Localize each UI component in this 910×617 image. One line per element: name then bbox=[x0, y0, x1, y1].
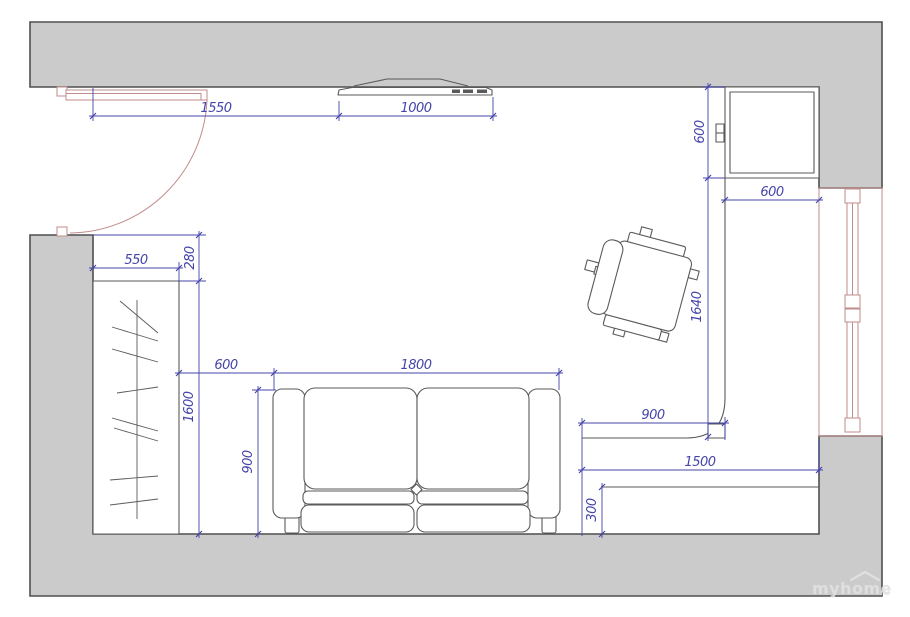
dim-sofa-gap: 600 bbox=[214, 358, 238, 373]
floorplan-canvas: 1550 1000 600 600 550 280 1600 600 1800 … bbox=[0, 0, 910, 617]
dim-tv-width: 1000 bbox=[400, 101, 431, 116]
window[interactable] bbox=[819, 188, 882, 436]
entry-door[interactable] bbox=[57, 87, 207, 236]
dim-sofa-depth: 900 bbox=[241, 450, 256, 474]
watermark-suffix: ru bbox=[880, 588, 890, 597]
sofa-armrest-right bbox=[528, 389, 560, 518]
dim-wardrobe-offset: 280 bbox=[183, 246, 198, 270]
dim-wardrobe-length: 1600 bbox=[182, 391, 197, 422]
door-leaf bbox=[66, 90, 207, 100]
dim-sofa-width: 1800 bbox=[400, 358, 431, 373]
wardrobe-body bbox=[93, 281, 179, 534]
tv-detail-1 bbox=[452, 90, 460, 94]
wall-cabinet[interactable] bbox=[716, 87, 819, 178]
sofa-seat-right bbox=[417, 388, 529, 489]
dim-counter-return: 900 bbox=[641, 408, 665, 423]
dim-wardrobe-width: 550 bbox=[124, 253, 148, 268]
mirrored-wardrobe[interactable] bbox=[93, 281, 179, 534]
sofa[interactable] bbox=[273, 388, 560, 533]
armchair[interactable] bbox=[570, 215, 706, 351]
window-frame-block-top bbox=[845, 189, 860, 203]
tv-detail-2 bbox=[463, 90, 473, 94]
dim-lowboard-depth: 300 bbox=[585, 498, 600, 522]
dim-door-clearance: 1550 bbox=[200, 101, 231, 116]
dim-cabinet-width: 600 bbox=[760, 185, 784, 200]
sofa-armrest-left bbox=[273, 389, 305, 518]
sofa-lumbar-cushion-right bbox=[417, 491, 528, 504]
dim-counter-length: 1640 bbox=[690, 291, 705, 322]
sofa-back-cushion-left bbox=[301, 505, 414, 532]
cabinet-body bbox=[725, 87, 819, 178]
dim-lowboard-width: 1500 bbox=[684, 455, 715, 470]
sofa-seat-left bbox=[304, 388, 417, 489]
sofa-lumbar-cushion-left bbox=[303, 491, 414, 504]
dim-cabinet-depth: 600 bbox=[693, 120, 708, 144]
sofa-back-cushion-right bbox=[417, 505, 530, 532]
window-frame-block-mid1 bbox=[845, 295, 860, 308]
door-swing-arc bbox=[70, 100, 207, 233]
tv-detail-3 bbox=[477, 90, 487, 94]
window-frame-block-bottom bbox=[845, 418, 860, 432]
floorplan-drawing: 1550 1000 600 600 550 280 1600 600 1800 … bbox=[0, 0, 910, 617]
window-frame-block-mid2 bbox=[845, 309, 860, 322]
door-jamb-bottom bbox=[57, 227, 67, 236]
